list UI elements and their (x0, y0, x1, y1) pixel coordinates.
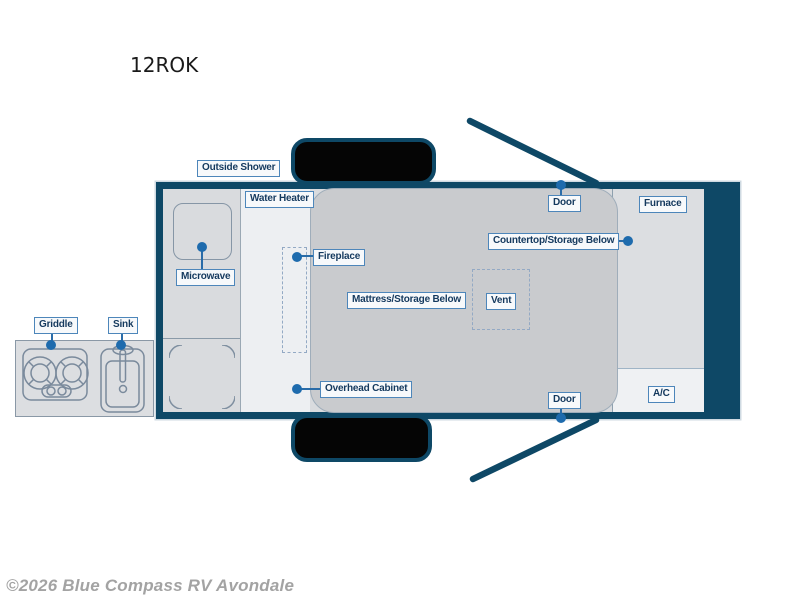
counter-art (16, 341, 152, 415)
label-outside-shower: Outside Shower (197, 160, 280, 177)
burner-icon (24, 357, 56, 389)
label-water-heater: Water Heater (245, 191, 314, 208)
label-furnace: Furnace (639, 196, 687, 213)
fridge-corner-arc (169, 396, 182, 409)
fridge-corner-arc (222, 396, 235, 409)
label-microwave: Microwave (176, 269, 235, 286)
label-ac: A/C (648, 386, 675, 403)
knob-icon (42, 385, 71, 397)
burner-icon (56, 357, 88, 389)
dot-griddle (46, 340, 56, 350)
door-swing-top (470, 121, 596, 183)
dot-microwave (197, 242, 207, 252)
storage-section (612, 189, 704, 368)
floorplan-page: 12ROK (0, 0, 800, 600)
label-vent: Vent (486, 293, 516, 310)
fridge-icon (169, 345, 235, 409)
dot-overhead-cabinet (292, 384, 302, 394)
label-door-bottom: Door (548, 392, 581, 409)
label-door-top: Door (548, 195, 581, 212)
label-overhead-cabinet: Overhead Cabinet (320, 381, 412, 398)
outside-counter (15, 340, 154, 417)
dealer-watermark: ©2026 Blue Compass RV Avondale (6, 576, 294, 596)
label-countertop: Countertop/Storage Below (488, 233, 619, 250)
fridge-corner-arc (222, 345, 235, 358)
label-fireplace: Fireplace (313, 249, 365, 266)
dot-door-bottom (556, 413, 566, 423)
dot-countertop (623, 236, 633, 246)
dot-door-top (556, 180, 566, 190)
label-sink: Sink (108, 317, 138, 334)
sink-icon (101, 346, 144, 413)
label-griddle: Griddle (34, 317, 78, 334)
label-mattress: Mattress/Storage Below (347, 292, 466, 309)
fold-out-bed-top (291, 138, 436, 185)
fold-out-bed-bottom (291, 414, 432, 462)
fridge-corner-arc (169, 345, 182, 358)
fireplace-icon (282, 247, 307, 353)
page-title: 12ROK (130, 53, 198, 77)
dot-fireplace (292, 252, 302, 262)
door-swing-bottom (473, 420, 596, 479)
dot-sink (116, 340, 126, 350)
